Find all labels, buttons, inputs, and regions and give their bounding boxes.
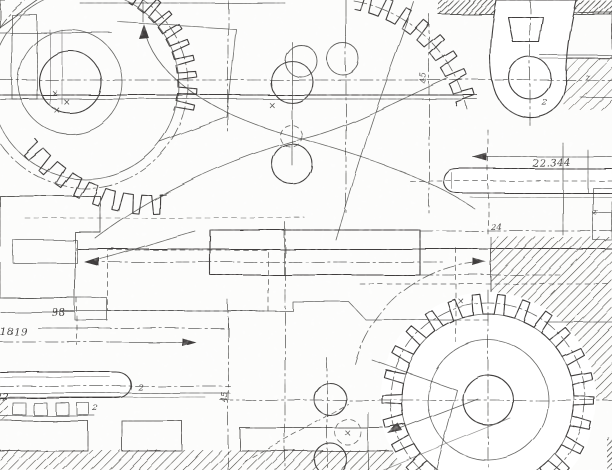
blueprint-canvas: 22.344 24 98 1819 45 45 2 2 2 22 × × × ×… [0,0,612,470]
grunge-texture-overlay [0,0,612,470]
technical-drawing-sheet: 22.344 24 98 1819 45 45 2 2 2 22 × × × ×… [0,0,612,470]
